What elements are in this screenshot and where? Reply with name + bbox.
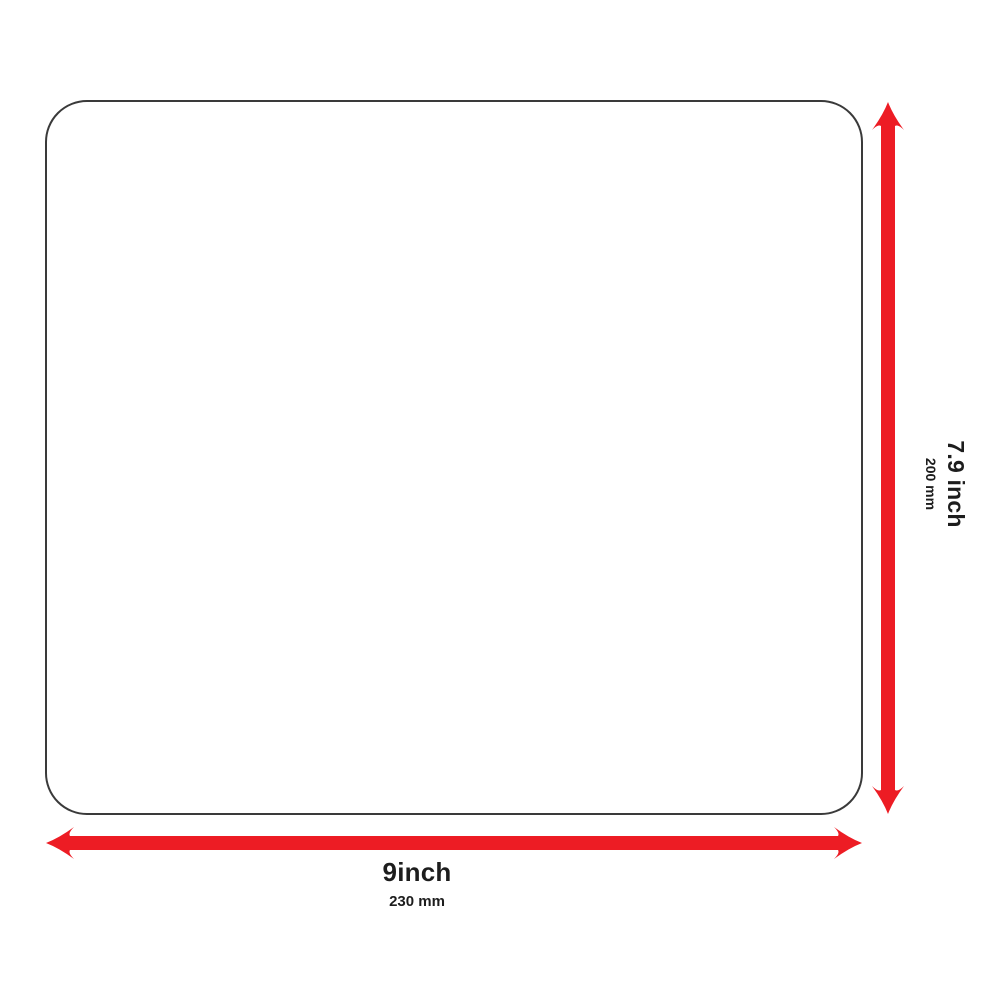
width-label-mm: 230 mm xyxy=(317,894,517,911)
dimension-diagram: 9inch 230 mm 7.9 inch 200 mm xyxy=(0,0,1000,1000)
height-arrow-icon xyxy=(866,101,910,815)
height-label-inch: 7.9 inch xyxy=(943,440,968,527)
height-arrow-shaft xyxy=(881,123,895,793)
height-arrow-head-top xyxy=(872,102,904,130)
width-dimension-label: 9inch 230 mm xyxy=(317,858,517,910)
product-panel xyxy=(45,100,863,815)
width-arrow-shaft xyxy=(67,836,841,850)
width-arrow-head-left xyxy=(46,827,74,859)
height-label-mm: 200 mm xyxy=(922,458,937,510)
height-arrow-head-bottom xyxy=(872,786,904,814)
width-arrow-head-right xyxy=(834,827,862,859)
height-dimension-label: 7.9 inch 200 mm xyxy=(922,442,968,526)
width-label-inch: 9inch xyxy=(317,858,517,887)
